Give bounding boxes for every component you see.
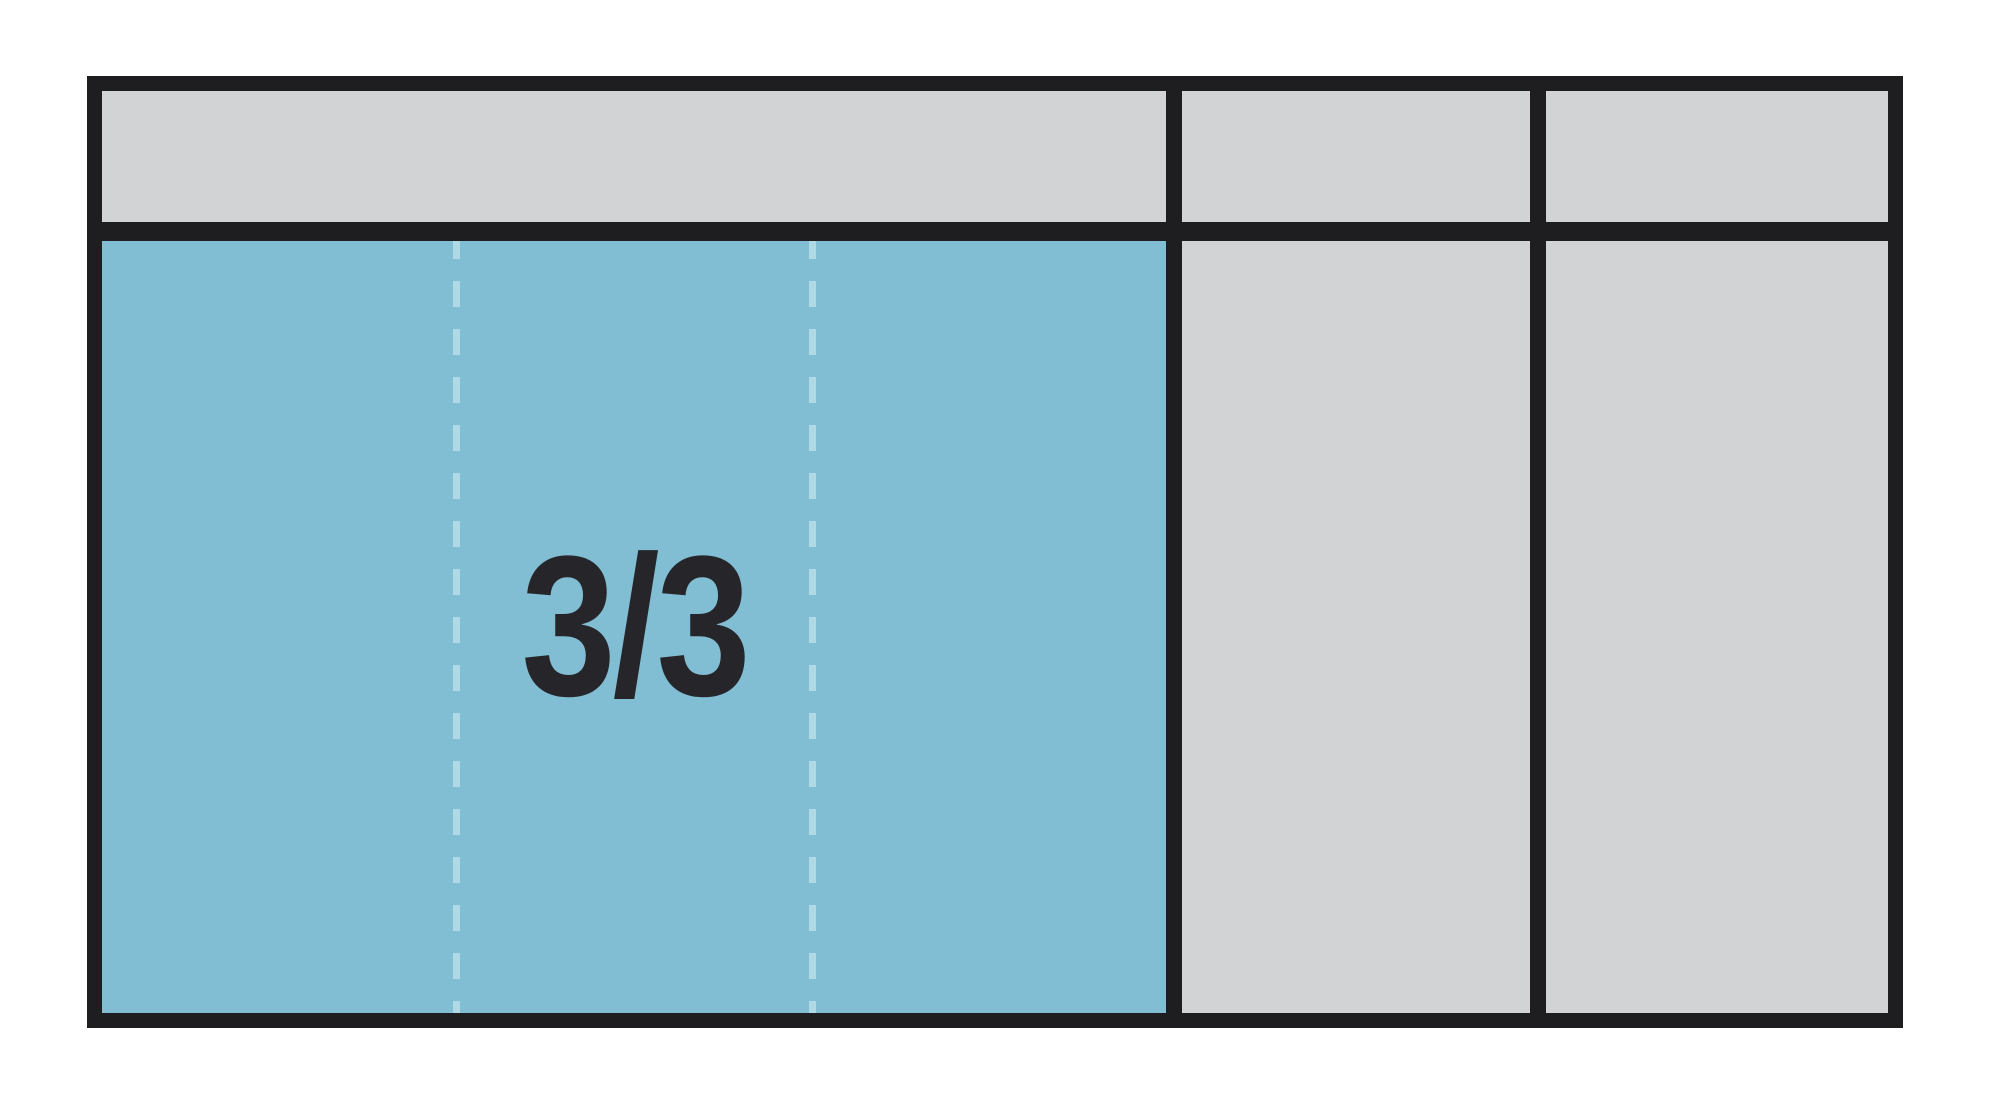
empty-column-middle <box>1182 241 1530 1013</box>
empty-column-right <box>1546 241 1888 1013</box>
dashed-divider-2 <box>809 241 816 1013</box>
header-cell-middle <box>1182 91 1530 222</box>
diagram-canvas: 3/3 <box>0 0 2000 1094</box>
tray-frame: 3/3 <box>87 76 1903 1028</box>
header-cell-right <box>1546 91 1888 222</box>
occupancy-label: 3/3 <box>483 241 785 1013</box>
occupied-section: 3/3 <box>102 241 1166 1013</box>
dashed-divider-1 <box>453 241 460 1013</box>
header-cell-main <box>102 91 1166 222</box>
